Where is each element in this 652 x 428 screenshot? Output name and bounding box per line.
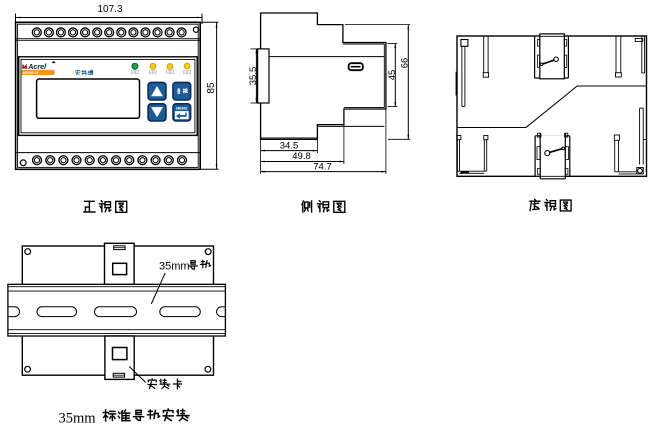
- svg-text:107.3: 107.3: [97, 4, 122, 15]
- svg-text:45: 45: [387, 70, 398, 81]
- svg-text:49.8: 49.8: [292, 151, 311, 162]
- svg-text:35mm: 35mm: [59, 411, 97, 427]
- svg-text:74.7: 74.7: [313, 161, 332, 172]
- svg-text:85: 85: [206, 82, 217, 94]
- svg-text:MENU: MENU: [176, 107, 187, 111]
- svg-text:66: 66: [400, 58, 411, 69]
- svg-text:35mm: 35mm: [159, 260, 190, 272]
- svg-text:ARD2F-25: ARD2F-25: [23, 71, 38, 75]
- svg-text:35.5: 35.5: [248, 67, 259, 86]
- svg-text:34.5: 34.5: [280, 140, 299, 151]
